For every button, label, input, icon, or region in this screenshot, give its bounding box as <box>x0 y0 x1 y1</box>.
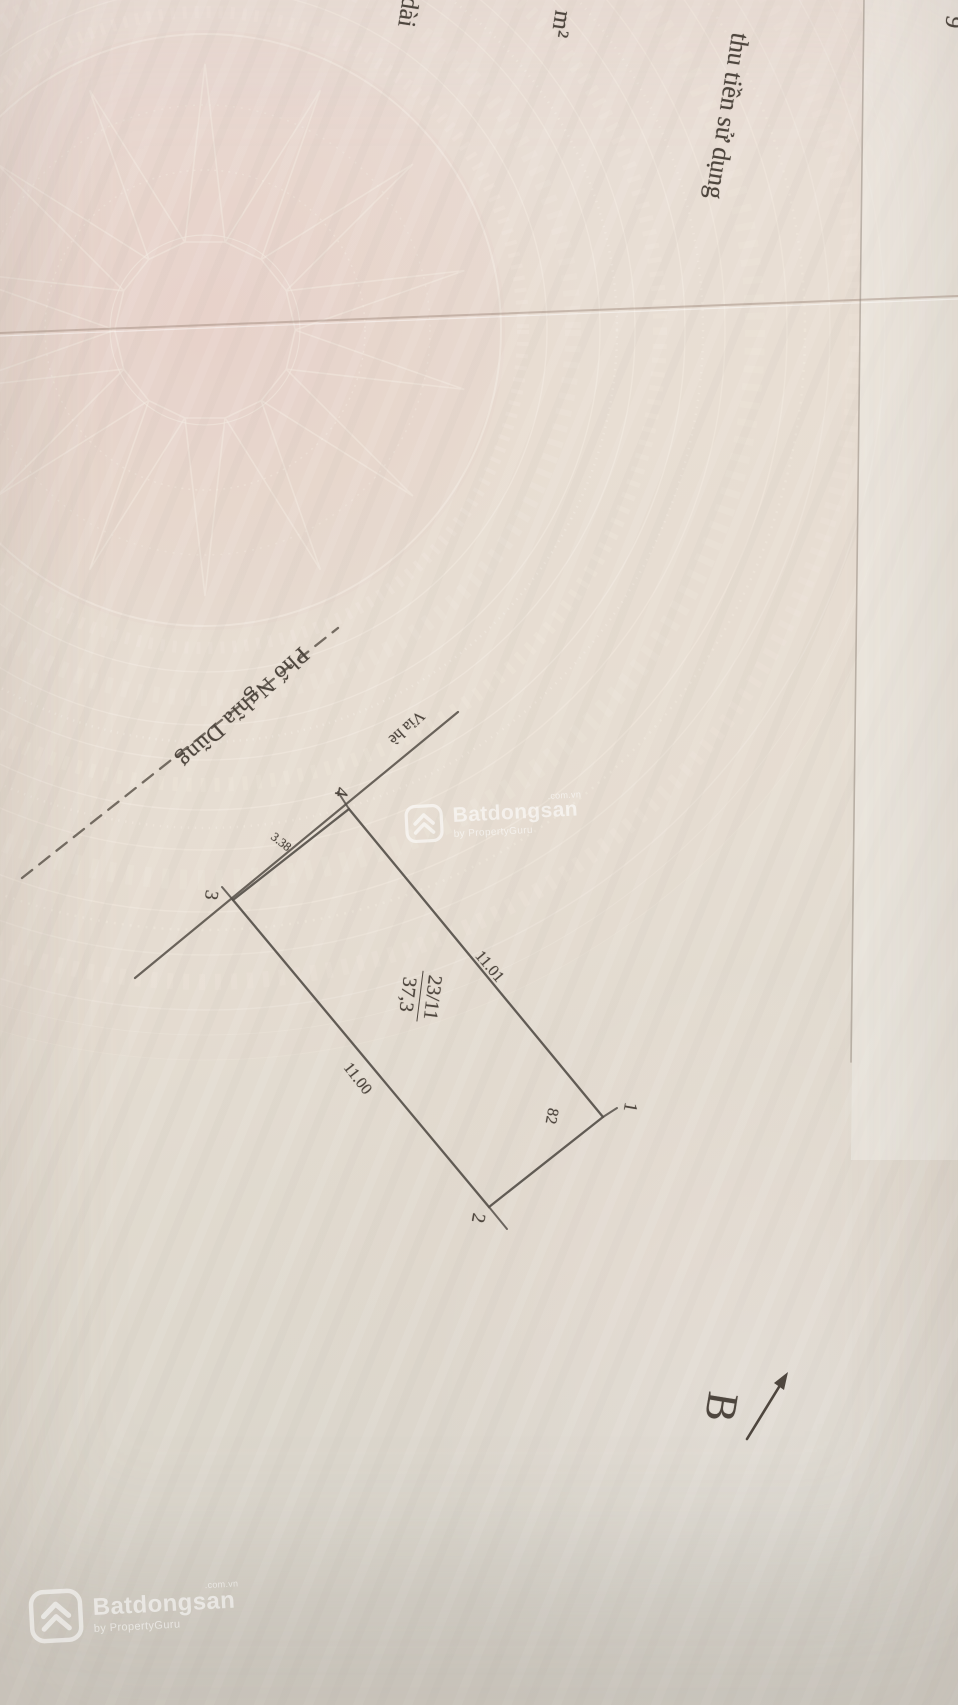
watermark-corner: .com.vn Batdongsan by PropertyGuru <box>27 1579 237 1646</box>
corner-label-1: 1 <box>620 1101 640 1114</box>
dimension-bottom-edge: 11.00 <box>340 1060 374 1098</box>
sketch-border-line <box>851 0 864 1062</box>
corner-label-2: 2 <box>468 1212 488 1225</box>
paper-texture-streaks <box>0 0 958 1705</box>
north-label: B <box>697 1389 745 1425</box>
watermark-domain: .com.vn <box>547 789 581 801</box>
adjacent-parcel-label: 82 <box>542 1107 561 1126</box>
corner-label-3: 3 <box>201 889 221 902</box>
page-edge-strip <box>0 0 958 1160</box>
parcel-number-area-label: 23/11 37,3 <box>395 968 446 1024</box>
street-name-label: Phố Nghĩa Dũng <box>173 643 314 773</box>
edge-number-fragment: 9 <box>940 14 958 30</box>
photographed-land-certificate: thu tiền sử dụng m² dài 9 Phố Nghĩa Dũng… <box>0 0 958 1705</box>
fee-text-fragment: thu tiền sử dụng <box>701 31 753 201</box>
photo-vignette <box>0 0 958 1705</box>
watermark-brand: Batdongsan <box>452 797 578 828</box>
corner-label-4: 4 <box>331 786 351 799</box>
drum-emblem-watermark <box>0 0 958 1705</box>
area-unit-fragment: m² <box>547 9 576 40</box>
watermark-byline: by PropertyGuru <box>453 822 579 840</box>
watermark-logo-icon <box>403 802 445 844</box>
watermark-brand: Batdongsan <box>92 1586 236 1621</box>
paper-crease-line <box>0 296 958 333</box>
cadastral-sketch-lines <box>0 0 958 1705</box>
watermark-byline: by PropertyGuru <box>93 1615 236 1634</box>
paper-crease-highlight <box>0 299 958 336</box>
watermark-center: .com.vn Batdongsan by PropertyGuru <box>403 795 579 844</box>
dimension-top-edge: 11.01 <box>471 948 506 985</box>
sidewalk-label: Vỉa hè <box>385 707 427 747</box>
light-sheen <box>0 0 958 1705</box>
watermark-logo-icon <box>27 1587 86 1646</box>
watermark-domain: .com.vn <box>204 1578 238 1590</box>
dimension-front-edge: 3.38 <box>269 830 294 853</box>
north-arrow <box>747 1372 788 1439</box>
word-fragment-left: dài <box>393 0 422 29</box>
